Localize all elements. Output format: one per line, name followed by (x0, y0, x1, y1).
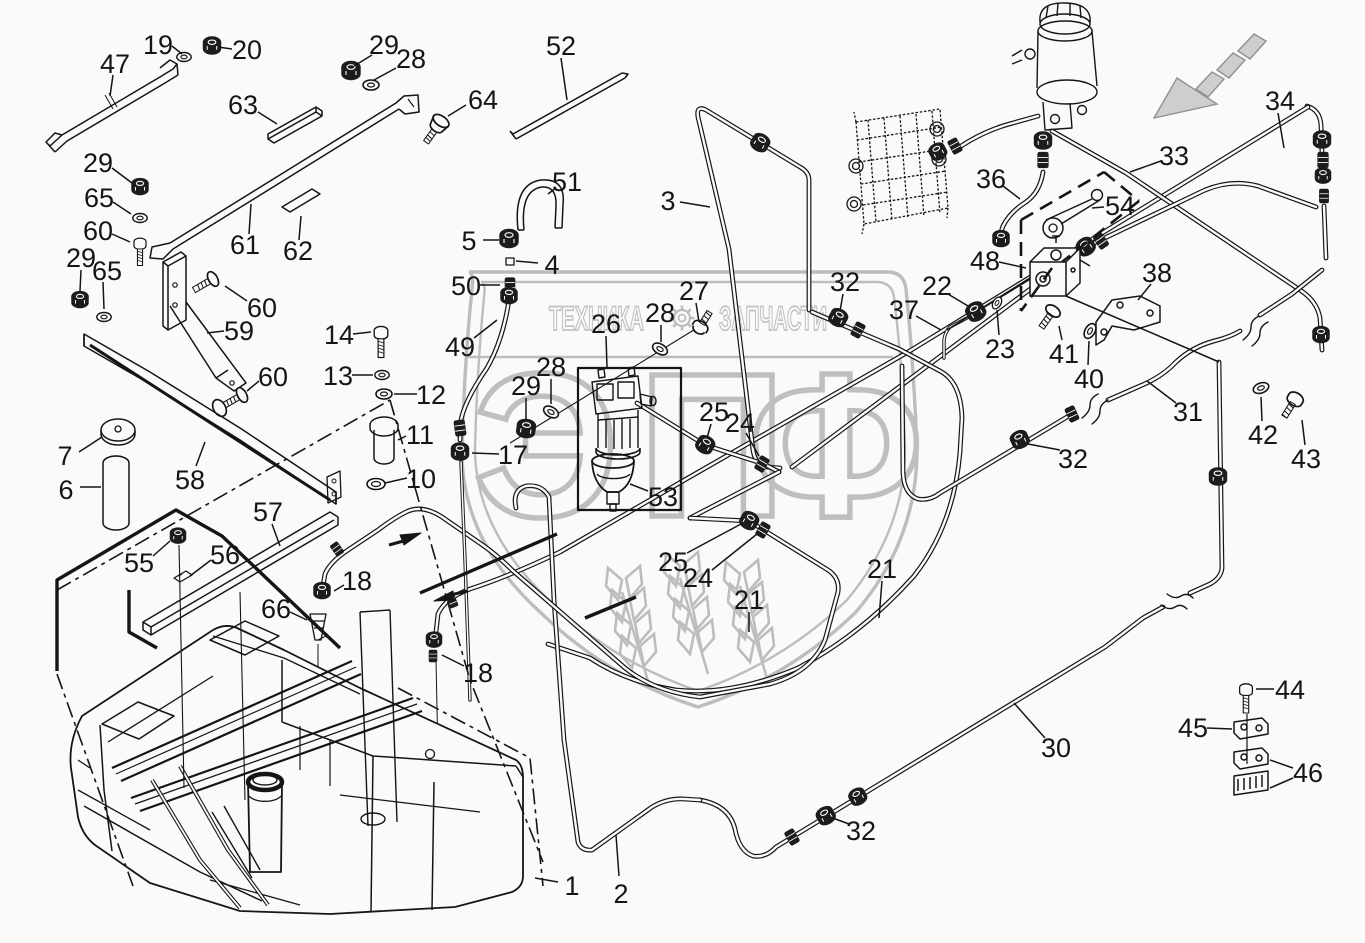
svg-text:12: 12 (416, 380, 446, 410)
svg-text:32: 32 (830, 267, 860, 297)
svg-text:34: 34 (1265, 86, 1295, 116)
svg-text:37: 37 (889, 295, 919, 325)
svg-text:4: 4 (544, 250, 559, 280)
svg-text:22: 22 (922, 271, 952, 301)
svg-text:24: 24 (683, 563, 713, 593)
svg-text:10: 10 (406, 464, 436, 494)
svg-text:1: 1 (564, 871, 579, 901)
svg-text:57: 57 (253, 497, 283, 527)
svg-text:28: 28 (536, 352, 566, 382)
svg-text:5: 5 (461, 226, 476, 256)
svg-text:62: 62 (283, 236, 313, 266)
svg-text:17: 17 (498, 440, 528, 470)
svg-text:27: 27 (679, 276, 709, 306)
svg-text:29: 29 (369, 30, 399, 60)
svg-text:32: 32 (846, 816, 876, 846)
svg-text:55: 55 (124, 548, 154, 578)
svg-text:53: 53 (648, 482, 678, 512)
svg-text:7: 7 (57, 441, 72, 471)
svg-text:36: 36 (976, 164, 1006, 194)
svg-text:33: 33 (1159, 141, 1189, 171)
svg-text:31: 31 (1173, 397, 1203, 427)
svg-text:26: 26 (591, 309, 621, 339)
svg-text:18: 18 (463, 658, 493, 688)
svg-text:30: 30 (1041, 733, 1071, 763)
svg-text:52: 52 (546, 31, 576, 61)
svg-text:45: 45 (1178, 713, 1208, 743)
svg-text:64: 64 (468, 85, 498, 115)
svg-text:60: 60 (247, 293, 277, 323)
svg-text:Ф: Ф (749, 331, 924, 560)
svg-text:63: 63 (228, 90, 258, 120)
svg-text:50: 50 (451, 271, 481, 301)
svg-text:44: 44 (1275, 675, 1305, 705)
svg-text:54: 54 (1105, 191, 1135, 221)
svg-text:38: 38 (1142, 258, 1172, 288)
svg-text:13: 13 (323, 361, 353, 391)
svg-text:11: 11 (406, 420, 434, 450)
svg-text:60: 60 (258, 362, 288, 392)
svg-text:58: 58 (175, 465, 205, 495)
svg-text:6: 6 (58, 475, 73, 505)
svg-text:29: 29 (83, 148, 113, 178)
svg-text:65: 65 (84, 183, 114, 213)
svg-text:3: 3 (660, 186, 675, 216)
svg-text:60: 60 (83, 216, 113, 246)
svg-text:51: 51 (552, 167, 582, 197)
svg-text:49: 49 (445, 332, 475, 362)
svg-text:48: 48 (970, 246, 1000, 276)
svg-text:24: 24 (725, 408, 755, 438)
svg-text:46: 46 (1293, 758, 1323, 788)
svg-text:19: 19 (143, 30, 173, 60)
svg-text:23: 23 (985, 334, 1015, 364)
svg-text:43: 43 (1291, 444, 1321, 474)
svg-text:66: 66 (261, 594, 291, 624)
svg-text:40: 40 (1074, 364, 1104, 394)
svg-text:32: 32 (1058, 444, 1088, 474)
svg-text:28: 28 (645, 298, 675, 328)
svg-text:42: 42 (1248, 420, 1278, 450)
svg-text:21: 21 (867, 554, 897, 584)
svg-text:2: 2 (613, 879, 628, 909)
svg-text:20: 20 (232, 35, 262, 65)
svg-text:28: 28 (396, 44, 426, 74)
svg-text:47: 47 (100, 49, 130, 79)
svg-text:18: 18 (342, 566, 372, 596)
svg-text:21: 21 (734, 585, 764, 615)
svg-text:61: 61 (230, 230, 260, 260)
svg-text:65: 65 (92, 256, 122, 286)
svg-text:14: 14 (324, 320, 354, 350)
svg-text:56: 56 (210, 540, 240, 570)
